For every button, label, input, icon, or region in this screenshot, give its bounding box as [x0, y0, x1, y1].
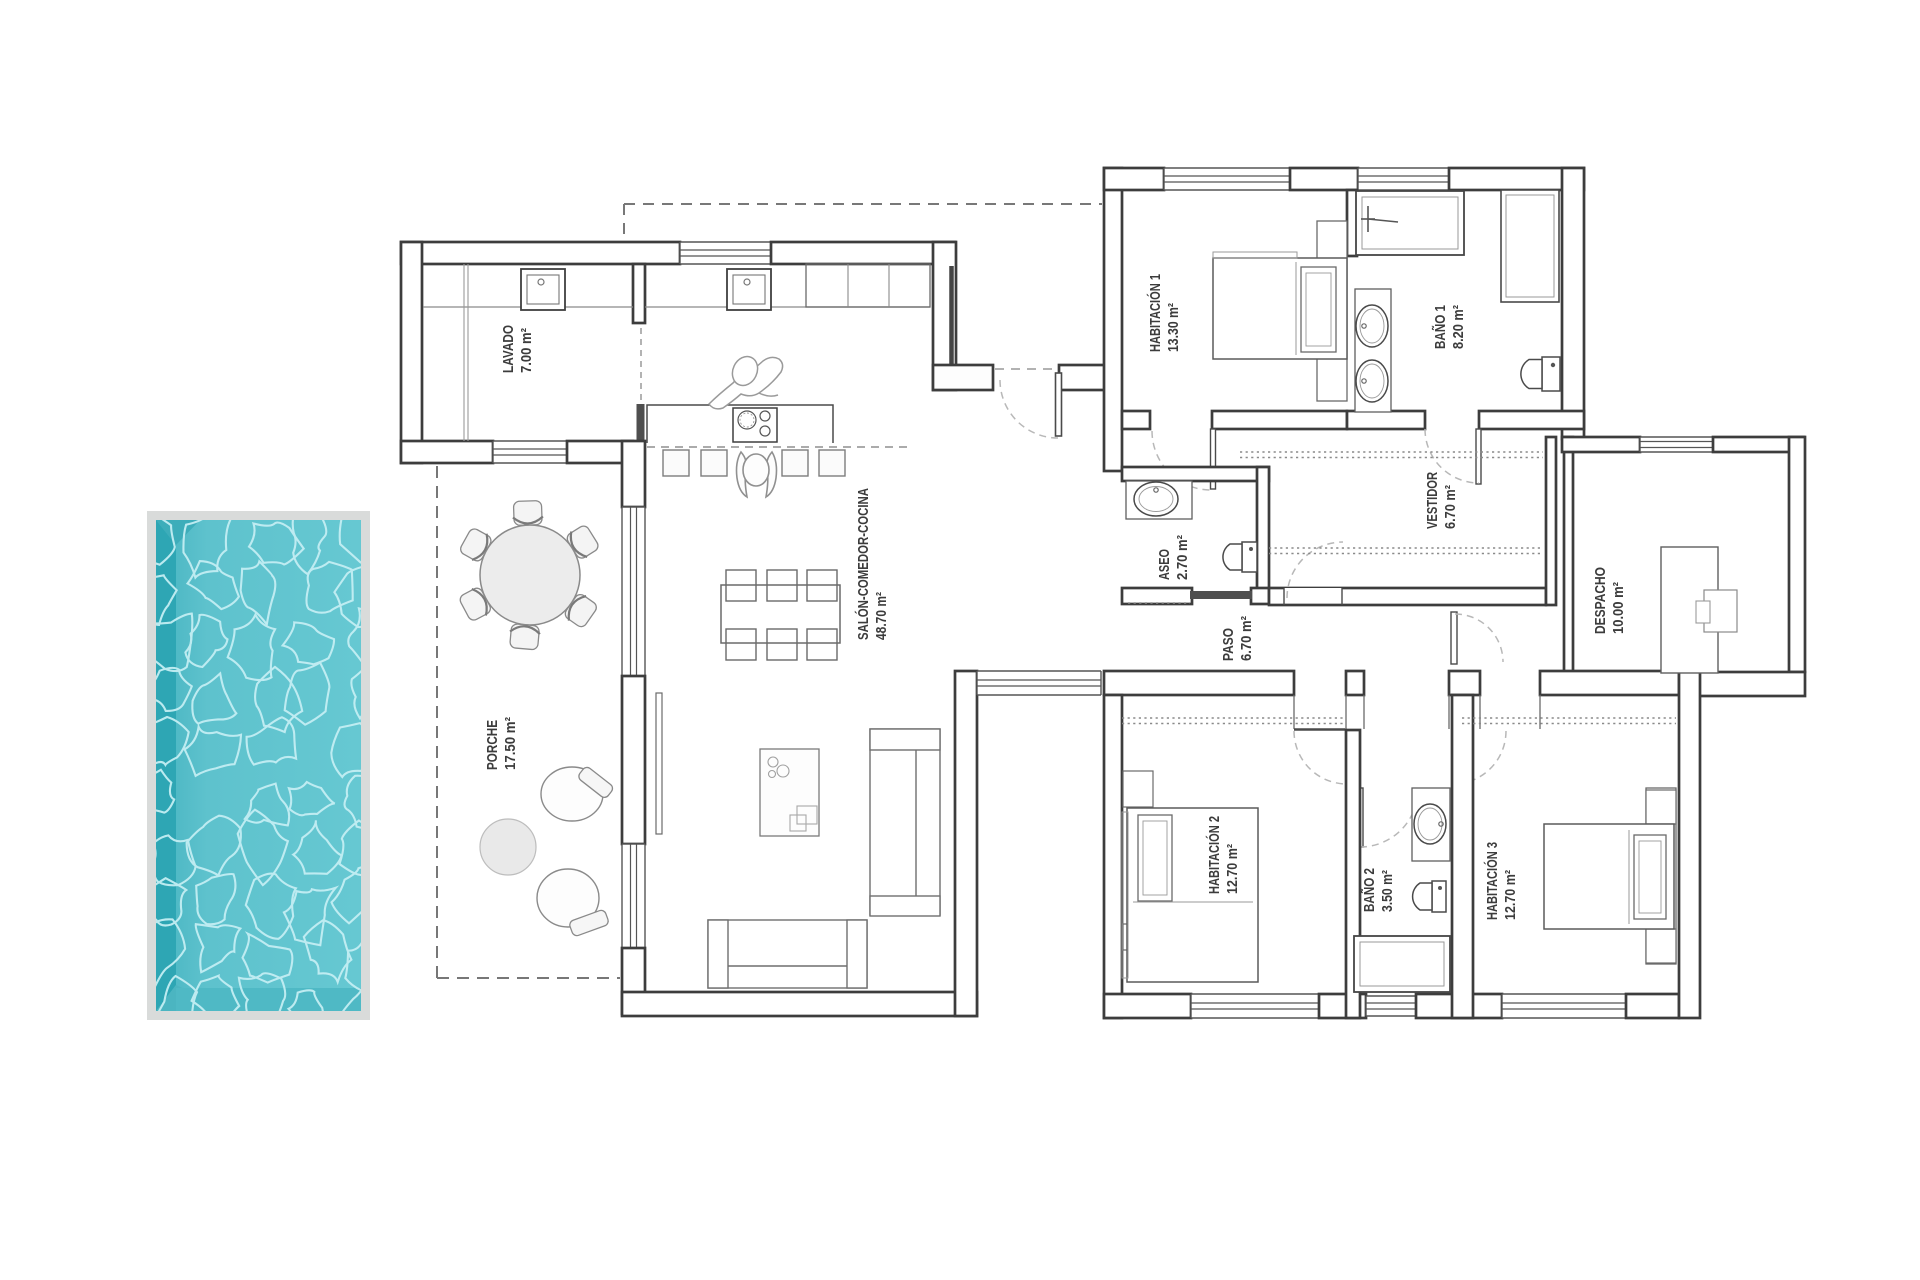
svg-text:HABITACIÓN 3: HABITACIÓN 3	[1483, 842, 1501, 920]
svg-text:BAÑO 1: BAÑO 1	[1431, 305, 1449, 349]
svg-text:HABITACIÓN 2: HABITACIÓN 2	[1205, 816, 1223, 894]
svg-text:ASEO: ASEO	[1157, 549, 1173, 580]
svg-text:13.30 m²: 13.30 m²	[1166, 303, 1182, 352]
svg-text:3.50 m²: 3.50 m²	[1380, 870, 1396, 912]
svg-text:BAÑO 2: BAÑO 2	[1360, 868, 1378, 912]
svg-text:48.70 m²: 48.70 m²	[874, 592, 890, 640]
svg-text:VESTIDOR: VESTIDOR	[1425, 472, 1441, 529]
svg-text:12.70 m²: 12.70 m²	[1225, 844, 1241, 894]
svg-text:6.70 m²: 6.70 m²	[1443, 485, 1459, 529]
svg-text:10.00 m²: 10.00 m²	[1611, 582, 1627, 634]
svg-text:PORCHE: PORCHE	[485, 720, 501, 770]
svg-text:17.50 m²: 17.50 m²	[503, 717, 519, 770]
svg-text:7.00 m²: 7.00 m²	[519, 328, 535, 373]
svg-text:HABITACIÓN 1: HABITACIÓN 1	[1146, 274, 1164, 352]
svg-text:8.20 m²: 8.20 m²	[1451, 305, 1467, 349]
svg-text:DESPACHO: DESPACHO	[1593, 567, 1609, 634]
svg-text:12.70 m²: 12.70 m²	[1503, 870, 1519, 920]
svg-text:SALÓN-COMEDOR-COCINA: SALÓN-COMEDOR-COCINA	[854, 488, 872, 640]
svg-text:6.70 m²: 6.70 m²	[1239, 616, 1255, 661]
svg-text:PASO: PASO	[1221, 628, 1237, 661]
svg-text:LAVADO: LAVADO	[501, 325, 517, 373]
svg-text:2.70 m²: 2.70 m²	[1175, 535, 1191, 580]
